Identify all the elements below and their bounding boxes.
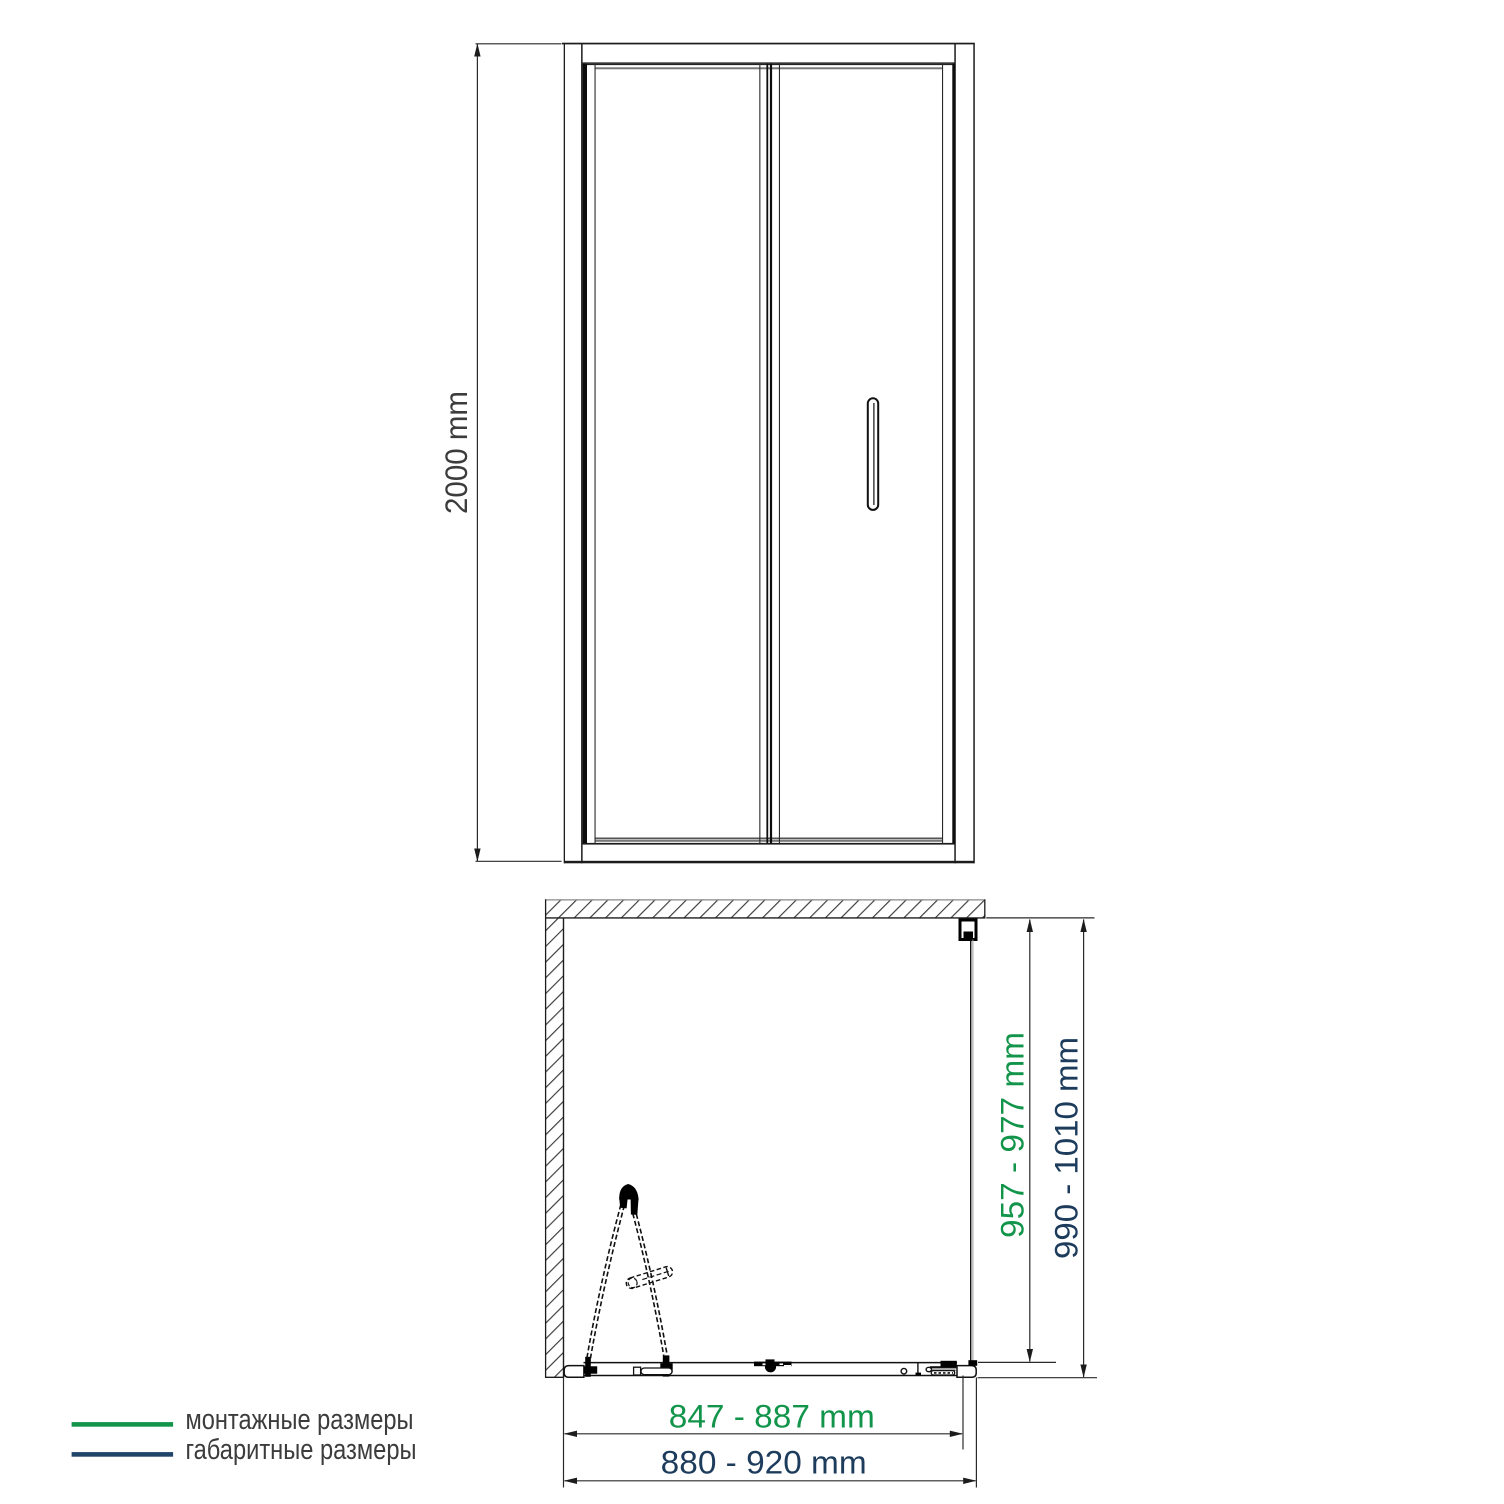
svg-text:880 - 920 mm: 880 - 920 mm [661, 1445, 867, 1481]
svg-text:847 - 887 mm: 847 - 887 mm [669, 1399, 875, 1435]
svg-text:957 - 977 mm: 957 - 977 mm [995, 1032, 1031, 1238]
svg-text:990 - 1010 mm: 990 - 1010 mm [1049, 1037, 1085, 1259]
svg-text:2000 mm: 2000 mm [438, 391, 474, 514]
svg-text:габаритные размеры: габаритные размеры [186, 1434, 417, 1466]
svg-text:монтажные размеры: монтажные размеры [186, 1404, 414, 1436]
